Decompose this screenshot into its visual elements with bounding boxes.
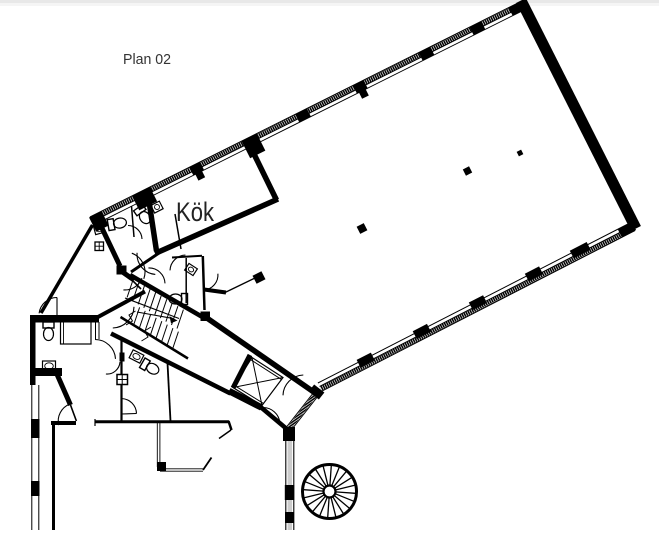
svg-text:Kök: Kök (176, 197, 214, 227)
svg-text:Plan 02: Plan 02 (123, 51, 171, 68)
